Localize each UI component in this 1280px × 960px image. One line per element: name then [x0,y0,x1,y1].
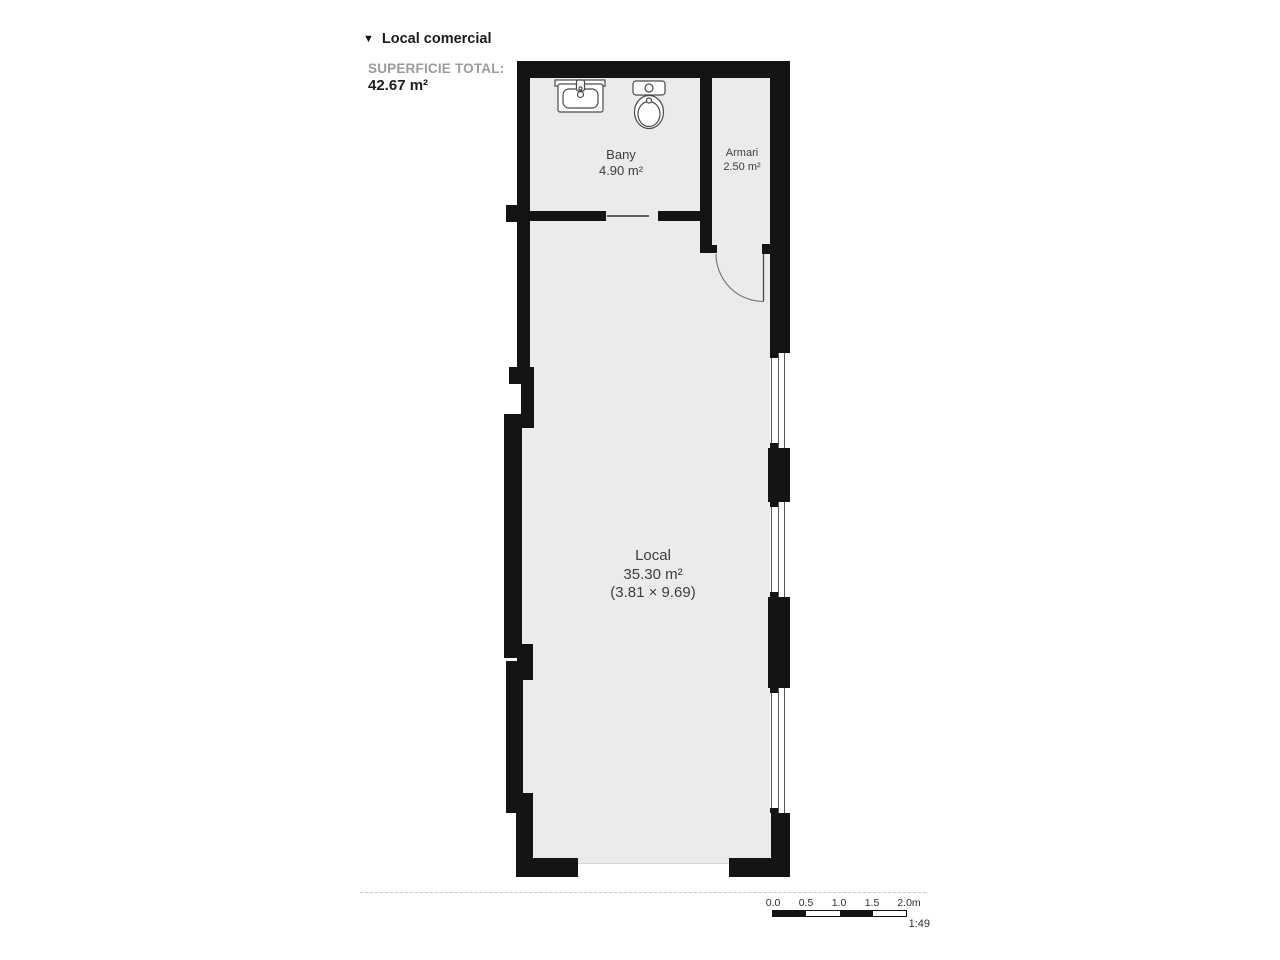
total-area-value: 42.67 m² [368,77,428,94]
room-name: Bany [599,147,643,163]
room-area: 35.30 m² [610,566,695,585]
page-title: Local comercial [382,31,492,47]
window [770,688,787,813]
wall-right-lower [771,813,790,877]
wall-right-upper [770,61,790,353]
wall-bany-bottom-left [524,211,606,221]
section-header-local-comercial[interactable]: ▼ Local comercial [363,31,492,47]
wall-left-step [506,661,533,680]
room-label-local: Local 35.30 m² (3.81 × 9.69) [610,547,695,603]
scale-segment [840,911,873,916]
room-dimensions: (3.81 × 9.69) [610,584,695,603]
scale-tick-label: 0.5 [799,897,814,909]
window-end-tick [770,592,778,597]
wall-left [517,62,530,205]
window-glass-line [771,502,772,597]
total-area-label: SUPERFICIE TOTAL: [368,61,504,76]
wall-left-step [509,367,534,384]
wall-left [521,384,534,415]
window-glass-line [784,353,785,448]
floor-area [522,78,772,864]
wall-divider-foot [700,245,717,253]
room-name: Armari [723,146,760,160]
wall-left [504,428,522,644]
wall-bottom-left [516,858,578,877]
window-glass-line [784,502,785,597]
window-glass-line [784,688,785,813]
collapse-triangle-icon: ▼ [363,34,374,45]
room-label-bany: Bany 4.90 m² [599,147,643,179]
scale-tick-label: 2.0m [897,897,920,909]
wall-left [517,222,530,368]
window [770,353,787,448]
window-glass-line [771,353,772,448]
window-end-tick [770,688,778,693]
scale-segment [806,911,839,916]
wall-door-stub [762,244,770,254]
room-area: 4.90 m² [599,163,643,179]
scale-segment [873,911,906,916]
wall-mullion [768,448,790,502]
scale-tick-label: 1.0 [832,897,847,909]
room-area: 2.50 m² [723,160,760,174]
window-glass-line [778,502,779,597]
window-glass-line [778,353,779,448]
scale-tick-label: 1.5 [865,897,880,909]
window [770,502,787,597]
window-end-tick [770,502,778,507]
wall-left-step [504,414,534,428]
wall-top [517,61,790,78]
room-name: Local [610,547,695,566]
window-glass-line [771,688,772,813]
wall-bany-bottom-right [658,211,700,221]
room-label-armari: Armari 2.50 m² [723,146,760,174]
window-end-tick [770,443,778,448]
window-glass-line [778,688,779,813]
wall-left [506,680,523,793]
wall-left-step [506,793,533,813]
window-end-tick [770,808,778,813]
scale-segment [773,911,806,916]
scale-tick-label: 0.0 [766,897,781,909]
wall-mullion [768,597,790,688]
wall-bany-armari-divider [700,78,712,253]
scale-ratio: 1:49 [900,918,930,930]
scale-bar-segments [772,910,907,917]
separator-dashed-line [360,892,926,893]
window-end-tick [770,353,778,358]
